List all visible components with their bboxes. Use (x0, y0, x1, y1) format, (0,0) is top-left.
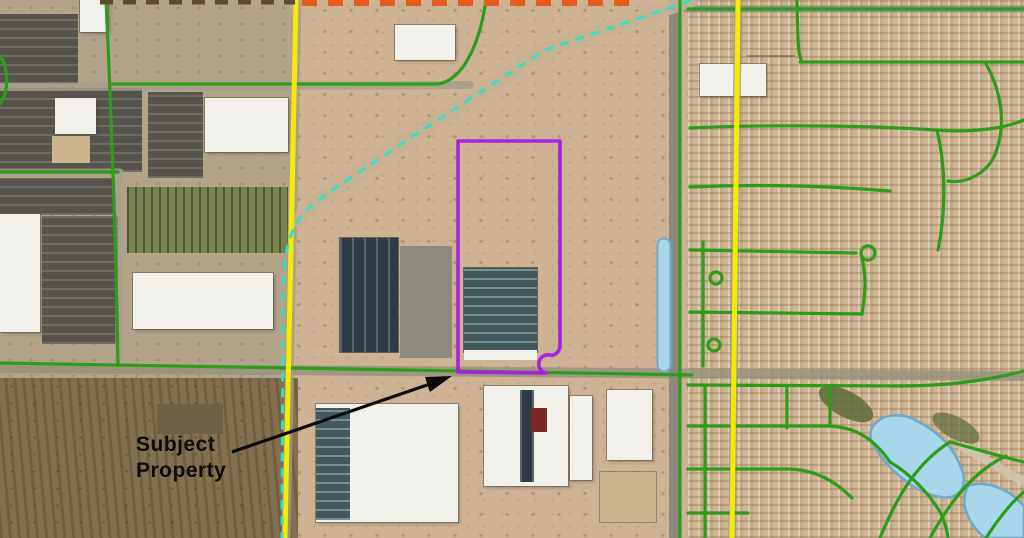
street-line (937, 130, 944, 250)
aerial-map: Subject Property (0, 0, 1024, 538)
callout-arrow (232, 376, 452, 452)
arrow-shaft (232, 384, 430, 452)
street-line (0, 56, 7, 104)
arrow-head (425, 376, 452, 392)
cul-de-sac (708, 339, 720, 351)
street-line (690, 250, 856, 253)
subject-property-label-line2: Property (136, 458, 226, 484)
subject-property-label: Subject Property (136, 432, 226, 484)
section-line-east (732, 0, 738, 538)
cul-de-sac (710, 272, 722, 284)
subject-property-boundary (458, 141, 560, 373)
street-line (688, 469, 852, 498)
lake (964, 484, 1024, 538)
subject-property-label-line1: Subject (136, 432, 226, 458)
street-line (688, 426, 890, 462)
water-features (664, 245, 1024, 538)
street-line (862, 258, 865, 314)
street-line (690, 186, 890, 191)
dirt-road (298, 1, 690, 221)
street-line (948, 62, 1001, 182)
street-line (690, 312, 862, 314)
